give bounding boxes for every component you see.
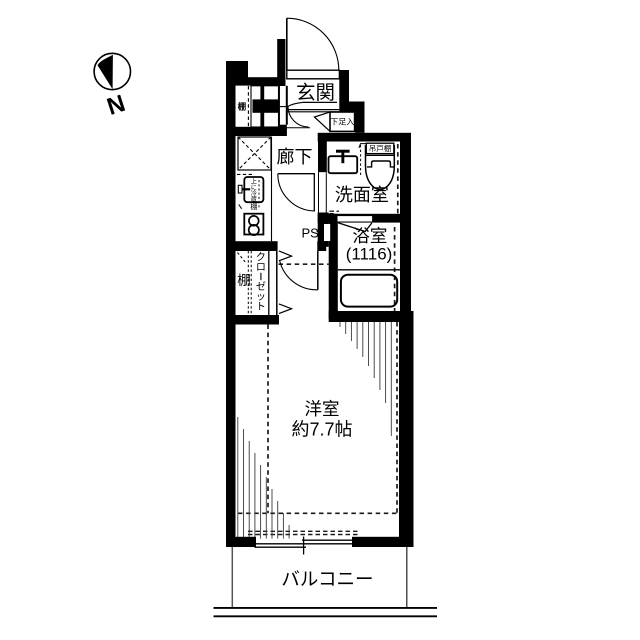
svg-text:洗面室: 洗面室 [335,185,389,205]
svg-text:バルコニー: バルコニー [281,568,373,589]
svg-text:浴室: 浴室 [352,226,387,246]
svg-text:玄関: 玄関 [296,82,335,104]
svg-text:ト: ト [256,302,266,313]
svg-text:蔵: 蔵 [251,196,257,204]
svg-text:棚: 棚 [237,273,251,288]
svg-text:棚: 棚 [238,102,247,112]
svg-text:棚: 棚 [250,202,257,211]
svg-text:吊戸棚: 吊戸棚 [369,143,392,153]
svg-text:N: N [104,90,129,121]
svg-text:下足入: 下足入 [330,118,354,127]
svg-text:ロ: ロ [256,262,266,273]
svg-text:PS: PS [302,226,320,241]
svg-text:冷: 冷 [251,190,257,198]
svg-text:(1116): (1116) [346,244,393,263]
svg-text:約7.7帖: 約7.7帖 [291,419,352,439]
svg-text:上: 上 [251,178,257,186]
svg-text:廊下: 廊下 [277,147,313,167]
svg-text:洋室: 洋室 [305,399,340,419]
svg-text:に: に [251,185,257,192]
